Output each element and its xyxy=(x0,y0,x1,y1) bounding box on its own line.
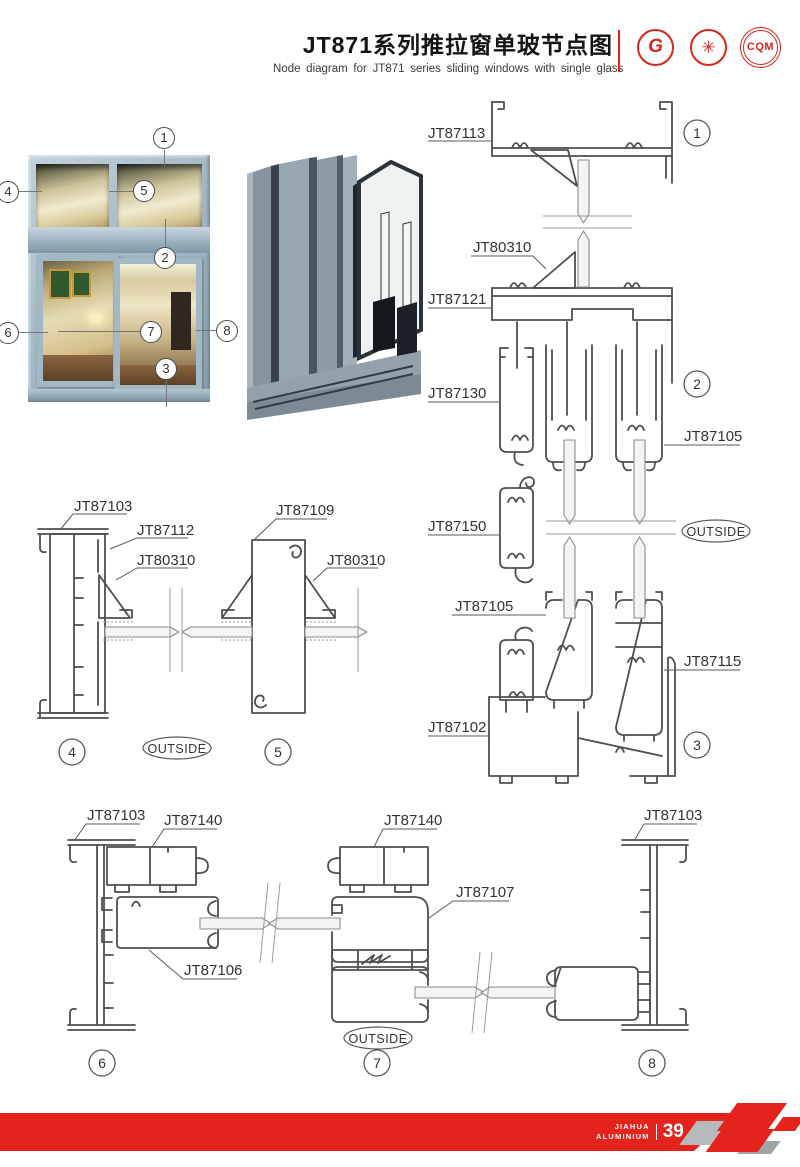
node-7-interlock-section xyxy=(328,847,428,1022)
part-label: JT87103 xyxy=(644,807,702,824)
photo-callout-3: 3 xyxy=(155,358,177,380)
catalog-page: JT871系列推拉窗单玻节点图 Node diagram for JT871 s… xyxy=(0,0,800,1167)
node-badge-7: 7 xyxy=(364,1050,390,1076)
callout-leader-4 xyxy=(19,191,42,192)
part-label: JT87140 xyxy=(164,812,222,829)
callout-leader-1 xyxy=(164,150,165,167)
outside-label: OUTSIDE xyxy=(686,525,745,539)
outside-marker-bottom: OUTSIDE xyxy=(344,1027,412,1049)
node-badge-5: 5 xyxy=(265,739,291,765)
node-4-jamb-section xyxy=(38,529,132,718)
outside-marker-middle: OUTSIDE xyxy=(143,737,211,759)
part-label: JT87105 xyxy=(684,428,742,445)
part-label: JT87113 xyxy=(428,125,485,142)
footer-brand-block: JIAHUA ALUMINIUM 39 xyxy=(596,1118,684,1146)
node-badge-8: 8 xyxy=(639,1050,665,1076)
part-label: JT87130 xyxy=(428,385,486,402)
part-label: JT87103 xyxy=(87,807,145,824)
callout-leader-8 xyxy=(196,330,216,331)
part-label: JT87140 xyxy=(384,812,442,829)
photo-callout-5: 5 xyxy=(133,180,155,202)
node-badge-4: 4 xyxy=(59,739,85,765)
photo-callout-2: 2 xyxy=(154,247,176,269)
part-label: JT80310 xyxy=(473,239,531,256)
outside-label: OUTSIDE xyxy=(147,742,206,756)
part-label: JT87112 xyxy=(137,522,194,539)
node-badge-text: 2 xyxy=(693,376,701,392)
node-badge-text: 7 xyxy=(373,1055,381,1071)
outside-marker-right: OUTSIDE xyxy=(682,520,750,542)
node-badge-text: 6 xyxy=(98,1055,106,1071)
callout-leader-7 xyxy=(58,331,140,332)
callout-leader-2 xyxy=(165,219,166,247)
part-label: JT87106 xyxy=(184,962,242,979)
footer-brand-line1: JIAHUA xyxy=(596,1122,650,1132)
node-badge-text: 4 xyxy=(68,744,76,760)
part-label: JT87121 xyxy=(428,291,486,308)
footer-separator xyxy=(656,1124,657,1140)
glass-panes xyxy=(105,160,645,998)
node-badge-2: 2 xyxy=(684,371,710,397)
node-jt87150-section xyxy=(500,477,534,582)
part-label: JT87115 xyxy=(684,653,741,670)
callout-leader-5 xyxy=(109,191,133,192)
part-label: JT80310 xyxy=(327,552,385,569)
part-label: JT87107 xyxy=(456,884,514,901)
node-diagram-layer: JT87113 JT80310 JT87121 JT87130 JT87105 … xyxy=(0,0,800,1167)
callout-leader-3 xyxy=(166,380,167,407)
part-label: JT80310 xyxy=(137,552,195,569)
part-label: JT87150 xyxy=(428,518,486,535)
part-label: JT87105 xyxy=(455,598,513,615)
node-badge-text: 3 xyxy=(693,737,701,753)
node-badge-3: 3 xyxy=(684,732,710,758)
photo-callout-7: 7 xyxy=(140,321,162,343)
part-label: JT87109 xyxy=(276,502,334,519)
footer-brand: JIAHUA ALUMINIUM xyxy=(596,1122,650,1142)
node-badge-6: 6 xyxy=(89,1050,115,1076)
part-label: JT87102 xyxy=(428,719,486,736)
photo-callout-8: 8 xyxy=(216,320,238,342)
node-badge-text: 5 xyxy=(274,744,282,760)
node-3-sill-section xyxy=(489,592,675,783)
break-lines xyxy=(103,216,676,1033)
node-8-jamb-section xyxy=(547,840,688,1030)
outside-label: OUTSIDE xyxy=(348,1032,407,1046)
footer-brand-line2: ALUMINIUM xyxy=(596,1132,650,1142)
part-label: JT87103 xyxy=(74,498,132,515)
node-badge-1: 1 xyxy=(684,120,710,146)
callout-leader-6 xyxy=(19,332,48,333)
photo-callout-1: 1 xyxy=(153,127,175,149)
node-badge-text: 8 xyxy=(648,1055,656,1071)
footer-page-number: 39 xyxy=(663,1121,684,1143)
node-6-jamb-section xyxy=(68,840,218,1030)
node-badge-text: 1 xyxy=(693,125,701,141)
